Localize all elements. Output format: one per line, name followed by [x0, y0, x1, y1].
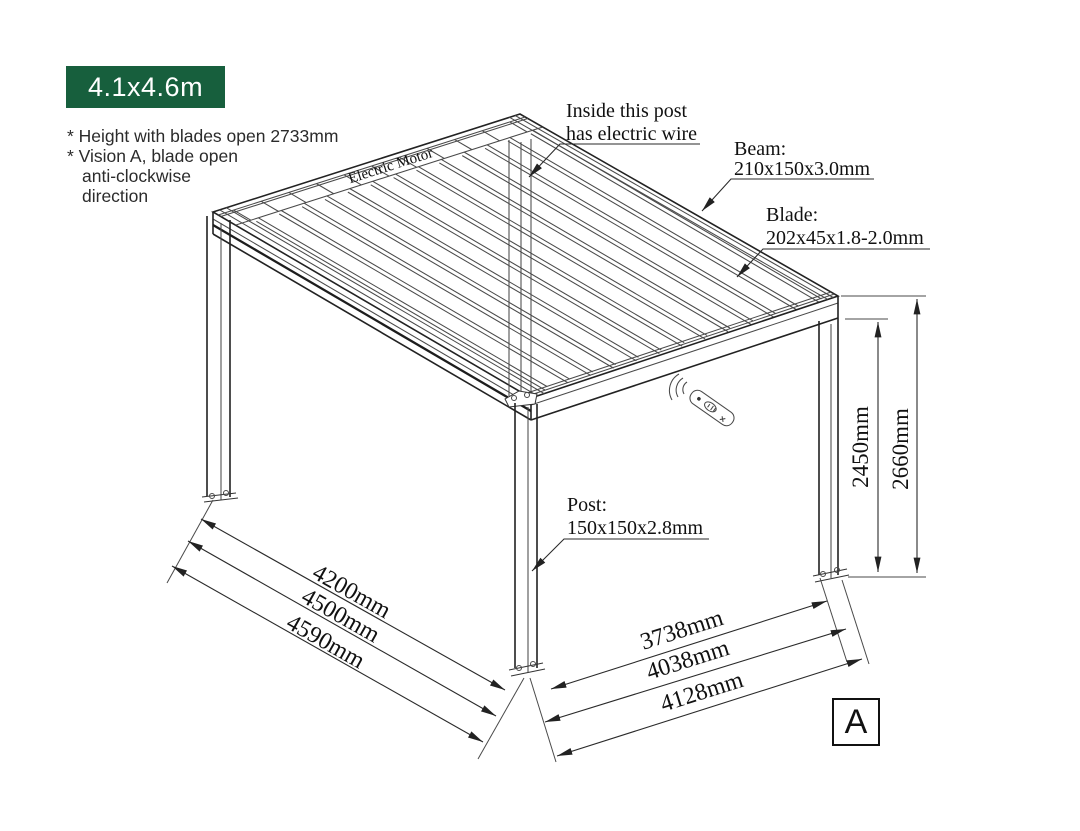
callout-post-spec: 150x150x2.8mm [567, 517, 704, 539]
front-post [509, 403, 545, 676]
callout-blade-title: Blade: [766, 204, 818, 226]
callout-wire-text2: has electric wire [566, 123, 697, 145]
dimension-group-left: 4200mm 4500mm 4590mm [167, 500, 524, 759]
callout-beam: Beam: 210x150x3.0mm [702, 138, 874, 211]
callout-beam-spec: 210x150x3.0mm [734, 158, 871, 180]
view-marker-a: A [832, 698, 880, 746]
callout-post-title: Post: [567, 494, 607, 516]
callout-wire-text1: Inside this post [566, 100, 688, 122]
callout-post: Post: 150x150x2.8mm [532, 494, 709, 571]
motor-label: Electric Motor [346, 145, 435, 187]
dimension-group-height: 2450mm 2660mm [841, 296, 926, 577]
dim-2450: 2450mm [848, 406, 873, 488]
dim-2660: 2660mm [888, 408, 913, 490]
callout-beam-title: Beam: [734, 138, 786, 160]
remote-signal-icon [669, 374, 687, 400]
view-marker-label: A [845, 703, 868, 742]
callout-blade-spec: 202x45x1.8-2.0mm [766, 227, 924, 249]
remote-control-icon [669, 374, 736, 428]
left-post [202, 216, 238, 502]
pergola-svg: Electric Motor [0, 0, 1080, 831]
pergola-dimension-diagram: 4.1x4.6m * Height with blades open 2733m… [0, 0, 1080, 831]
right-post [813, 318, 849, 582]
dimension-group-right: 3738mm 4038mm 4128mm [530, 578, 869, 762]
